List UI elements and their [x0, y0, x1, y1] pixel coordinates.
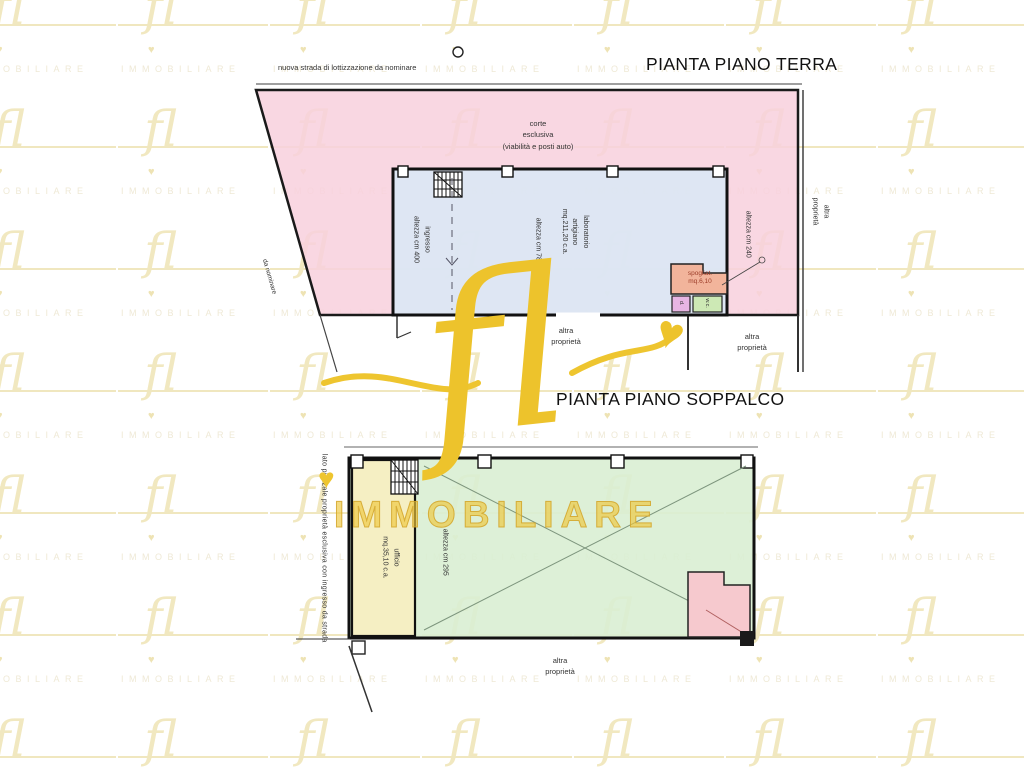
- altra-proprieta-basso-label: altra proprietà: [712, 331, 792, 354]
- altra-proprieta-dx-label: altra proprietà: [810, 184, 831, 240]
- survey-point-circle: [453, 47, 463, 57]
- altezza-dx-label: altezza cm 240: [742, 189, 753, 279]
- heart-icon: ♥: [649, 303, 691, 361]
- piano-terra-title: PIANTA PIANO TERRA: [646, 54, 837, 75]
- street-top-label: nuova strada di lottizzazione da nominar…: [278, 62, 416, 73]
- corte-label: corte esclusiva (viabilità e posti auto): [448, 118, 628, 152]
- floorplan-page: fl♥IMMOBILIAREfl♥IMMOBILIAREfl♥IMMOBILIA…: [0, 0, 1024, 768]
- agency-logo-script: fl: [396, 225, 579, 487]
- agency-logo: fl ♥: [320, 225, 720, 495]
- altra-proprieta-soppalco-label: altra proprietà: [520, 655, 600, 678]
- heart-icon: ♥: [318, 463, 335, 495]
- stairs-icon-terra: [434, 172, 462, 197]
- agency-logo-wordmark: IMMOBILIARE: [334, 494, 660, 536]
